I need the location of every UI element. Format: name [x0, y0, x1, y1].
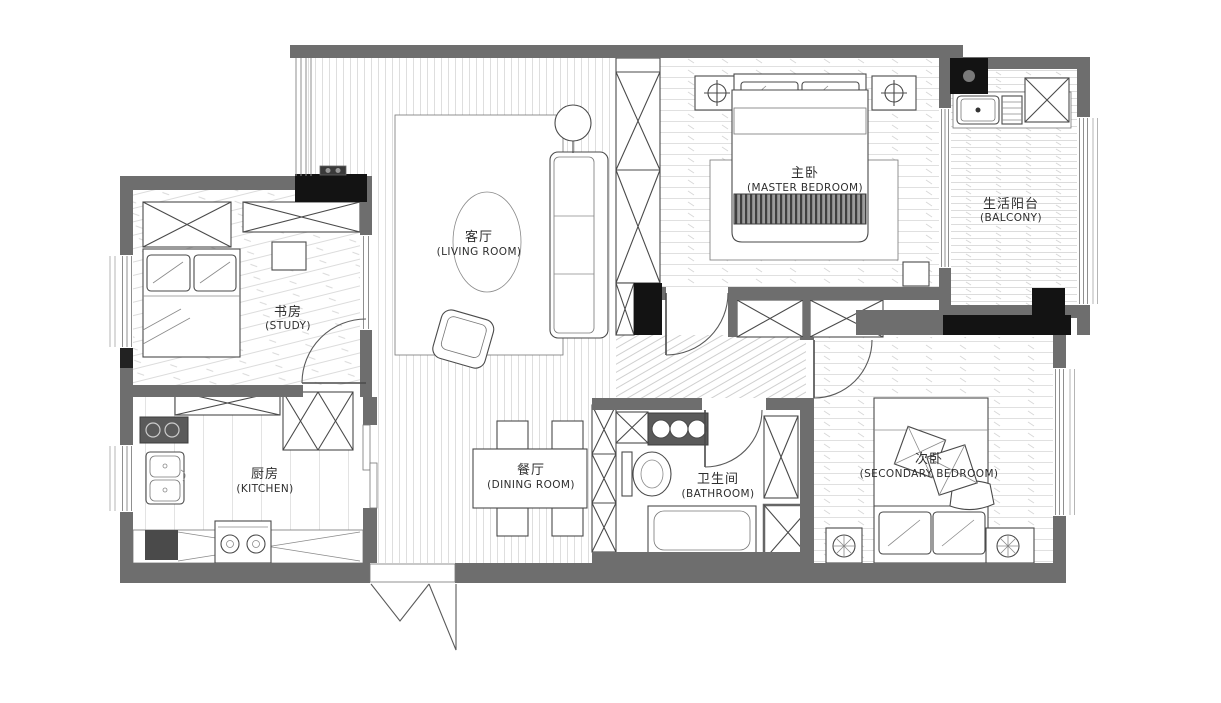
study-label-zh: 书房 — [274, 304, 302, 320]
living-room-label-zh: 客厅 — [465, 229, 493, 245]
study-desk — [272, 242, 306, 270]
structural-column — [634, 283, 662, 335]
entrance-door-swing[interactable] — [371, 584, 456, 650]
toilet — [633, 452, 671, 496]
structural-column — [295, 174, 367, 202]
master-dresser — [903, 262, 929, 286]
secondary-window — [1056, 369, 1064, 515]
kitchen-label-en: (KITCHEN) — [236, 483, 293, 495]
secondary-bedroom-label-en: (SECONDARY BEDROOM) — [860, 468, 999, 480]
kitchen-dark-unit — [145, 530, 178, 560]
study-window — [123, 256, 132, 347]
study-glass-partition — [364, 236, 369, 329]
study-label-en: (STUDY) — [265, 320, 311, 332]
toilet-tank — [622, 452, 632, 496]
floor-plan-canvas: 客厅 (LIVING ROOM) 主卧 (MASTER BEDROOM) 生活阳… — [0, 0, 1221, 703]
bathroom-label-en: (BATHROOM) — [682, 488, 755, 500]
pillow — [933, 512, 985, 554]
pillow — [147, 255, 190, 291]
basin — [688, 420, 706, 438]
fridge — [283, 392, 353, 450]
structural-column — [120, 348, 133, 368]
living-room-label-en: (LIVING ROOM) — [437, 246, 522, 258]
floor-lamp — [555, 105, 591, 141]
dining-chair — [497, 421, 528, 449]
pillow — [194, 255, 236, 291]
kitchen-sliding-door[interactable] — [370, 463, 377, 508]
kitchen-sliding-door[interactable] — [363, 425, 370, 470]
dining-chair — [552, 508, 583, 536]
dining-chair — [552, 421, 583, 449]
kitchen-label-zh: 厨房 — [251, 466, 279, 482]
dining-room-label-en: (DINING ROOM) — [487, 479, 575, 491]
pillow — [879, 512, 931, 554]
balcony-window — [1080, 118, 1088, 304]
kitchen-window — [123, 446, 132, 511]
dining-chair — [497, 508, 528, 536]
floor-plan-page: 客厅 (LIVING ROOM) 主卧 (MASTER BEDROOM) 生活阳… — [0, 0, 1221, 703]
bathroom-label-zh: 卫生间 — [697, 472, 739, 487]
bed-runner — [734, 194, 866, 224]
basin — [670, 420, 688, 438]
master-bedroom-label-en: (MASTER BEDROOM) — [747, 182, 863, 194]
balcony-label-en: (BALCONY) — [980, 212, 1042, 224]
structural-column — [1032, 288, 1065, 318]
master-bedroom-label-zh: 主卧 — [791, 166, 819, 181]
basin — [652, 420, 670, 438]
dining-room-label-zh: 餐厅 — [517, 462, 545, 478]
secondary-bedroom-label-zh: 次卧 — [915, 451, 943, 467]
master-balcony-glass-door — [942, 109, 949, 267]
entrance-threshold — [370, 564, 455, 582]
kitchen-hob-unit — [140, 417, 188, 443]
corridor-floor — [616, 335, 806, 398]
structural-wall — [943, 315, 1071, 335]
balcony-label-zh: 生活阳台 — [983, 197, 1039, 212]
